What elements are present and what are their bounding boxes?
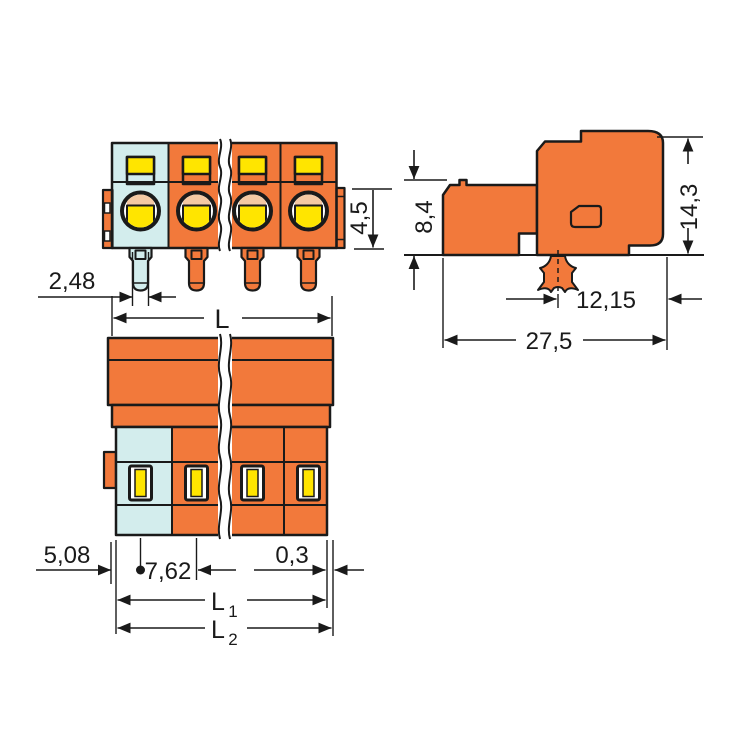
dimension-L2: L 2 bbox=[118, 616, 332, 649]
wire-entry-pole-4 bbox=[290, 193, 327, 230]
wire-entry-pole-3 bbox=[234, 193, 271, 230]
wire-entry-pole-2 bbox=[178, 193, 215, 230]
dimension-edge-offset: 5,08 bbox=[36, 538, 145, 584]
dim-label: L bbox=[214, 304, 229, 334]
pin-4 bbox=[298, 248, 320, 291]
dimension-pin-width: 2,48 bbox=[38, 252, 176, 306]
dimension-lower-height: 8,4 bbox=[404, 150, 447, 290]
connector-dimension-drawing: 2,48 4,5 L 8,4 14,3 12,15 bbox=[0, 0, 750, 750]
dim-label: 8,4 bbox=[411, 200, 438, 233]
dim-label: 12,15 bbox=[576, 287, 636, 314]
side-view bbox=[404, 131, 704, 308]
pin-3 bbox=[242, 248, 264, 291]
dim-label: L bbox=[211, 616, 225, 644]
dim-label-subscript: 1 bbox=[228, 602, 237, 621]
conductor-slot-pole-2 bbox=[186, 466, 208, 500]
dim-label: L bbox=[211, 588, 225, 616]
technical-drawing-canvas: 2,48 4,5 L 8,4 14,3 12,15 bbox=[0, 0, 750, 750]
conductor-slot-pole-1 bbox=[130, 466, 152, 500]
pin-2 bbox=[186, 248, 208, 291]
break-line-top bbox=[218, 334, 232, 539]
conductor-slot-pole-3 bbox=[242, 466, 264, 500]
left-mounting-tab-top bbox=[104, 452, 116, 488]
top-view bbox=[104, 334, 333, 539]
dimension-pitch: 7,62 bbox=[145, 538, 236, 585]
dimension-end-gap: 0,3 bbox=[254, 540, 364, 636]
dimension-latch-height: 4,5 bbox=[346, 189, 392, 249]
tab-slot bbox=[105, 231, 111, 241]
dimension-length-L: L bbox=[112, 296, 332, 336]
tab-slot bbox=[105, 203, 111, 213]
front-view bbox=[103, 139, 345, 291]
dim-label: 27,5 bbox=[526, 328, 573, 355]
dim-label: 0,3 bbox=[275, 542, 308, 569]
dim-label: 14,3 bbox=[676, 184, 703, 231]
wire-entry-pole-1 bbox=[122, 193, 159, 230]
lower-housing-block bbox=[443, 180, 537, 255]
dim-label: 7,62 bbox=[145, 558, 192, 585]
upper-housing-block bbox=[537, 131, 663, 255]
dim-label: 2,48 bbox=[49, 268, 96, 295]
dim-label-subscript: 2 bbox=[228, 630, 237, 649]
dim-label: 4,5 bbox=[346, 201, 373, 234]
dim-label: 5,08 bbox=[44, 542, 91, 569]
conductor-slot-pole-4 bbox=[298, 466, 320, 500]
dim-dot bbox=[136, 566, 145, 575]
break-line-front bbox=[218, 139, 232, 252]
